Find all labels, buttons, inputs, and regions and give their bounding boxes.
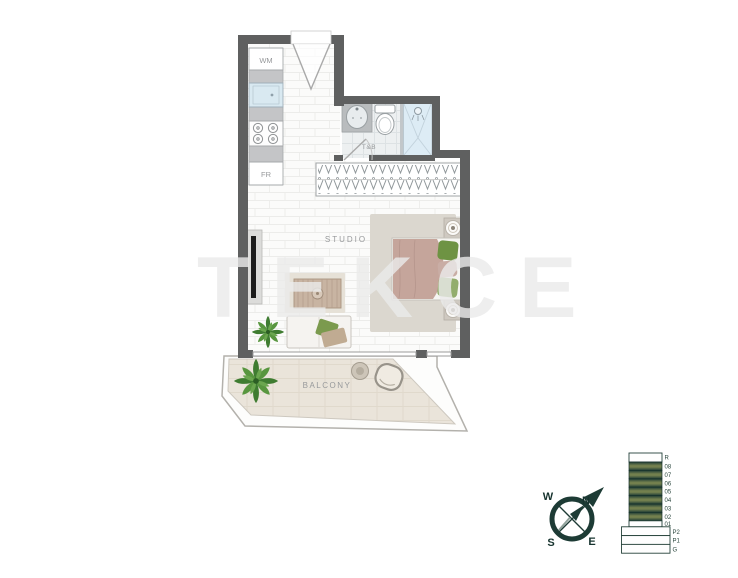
floor-band-07 (629, 470, 662, 478)
floor-label: 02 (665, 515, 672, 521)
floor-band-02 (629, 512, 662, 520)
floor-label: P1 (673, 539, 681, 545)
floor-label: 06 (665, 481, 672, 487)
compass-north-label: N (582, 495, 590, 507)
toilet-tank (375, 105, 395, 113)
kitchen-counter (249, 107, 283, 121)
lamp-icon (446, 221, 461, 236)
sliding-glass-door (253, 352, 416, 356)
wall-bottom-left (238, 350, 253, 358)
compass: W N S E (543, 487, 604, 549)
compass-east-label: E (588, 536, 595, 548)
floor-band-01 (629, 521, 662, 527)
floor-band-04 (629, 496, 662, 504)
floor-band-06 (629, 479, 662, 487)
floor-plan-page: BALCONY WM FR T&B (0, 0, 738, 578)
floor-band-03 (629, 504, 662, 512)
shower-partition (400, 103, 404, 156)
floor-label: 03 (665, 507, 672, 513)
compass-west-label: W (543, 491, 554, 503)
bath-label: T&B (362, 144, 376, 151)
sink-drain-icon (360, 117, 362, 119)
floor-band-p1 (622, 536, 671, 545)
floor-label: 07 (665, 473, 672, 479)
floor-label: 04 (665, 498, 672, 504)
sink-drain-icon (352, 117, 354, 119)
floor-label: 05 (665, 490, 672, 496)
floor-band-g (622, 544, 671, 553)
floor-label: G (673, 547, 678, 553)
wall-bath-bottom-left (334, 155, 343, 161)
floor-band-roof (629, 453, 662, 462)
wall-bath-bottom-right (369, 155, 435, 161)
kitchen: WM FR (249, 48, 283, 185)
faucet-icon (356, 108, 359, 111)
shower-head-icon (415, 108, 422, 115)
wall-bottom-right (451, 350, 470, 358)
wall-bath-right (432, 96, 440, 158)
floor-label: P2 (673, 530, 681, 536)
entry-door-frame (291, 31, 331, 44)
floor-label: 08 (665, 465, 672, 471)
compass-south-label: S (547, 537, 554, 549)
floor-label: 01 (665, 522, 672, 528)
wall-bottom-pier (416, 350, 427, 358)
washer-label: WM (259, 56, 272, 65)
floor-plan-svg: BALCONY WM FR T&B (0, 0, 738, 578)
sliding-glass-door (427, 352, 451, 356)
balcony-label: BALCONY (303, 381, 352, 390)
balcony-side-table-top (356, 367, 364, 375)
faucet-icon (271, 94, 274, 97)
floor-band-p2 (622, 527, 671, 536)
kitchen-sink (249, 83, 283, 107)
building-elevation: R 08 07 06 05 04 03 02 01 P2 P1 G (622, 453, 681, 553)
wardrobe (316, 163, 462, 196)
balcony: BALCONY (222, 356, 467, 431)
kitchen-counter (249, 146, 283, 162)
floor-band-05 (629, 487, 662, 495)
kitchen-counter (249, 70, 283, 83)
fridge-label: FR (261, 170, 272, 179)
floor-band-08 (629, 462, 662, 470)
wall-bath-top (334, 96, 440, 104)
watermark: TEKCE (197, 240, 598, 336)
floor-label: R (665, 456, 670, 462)
